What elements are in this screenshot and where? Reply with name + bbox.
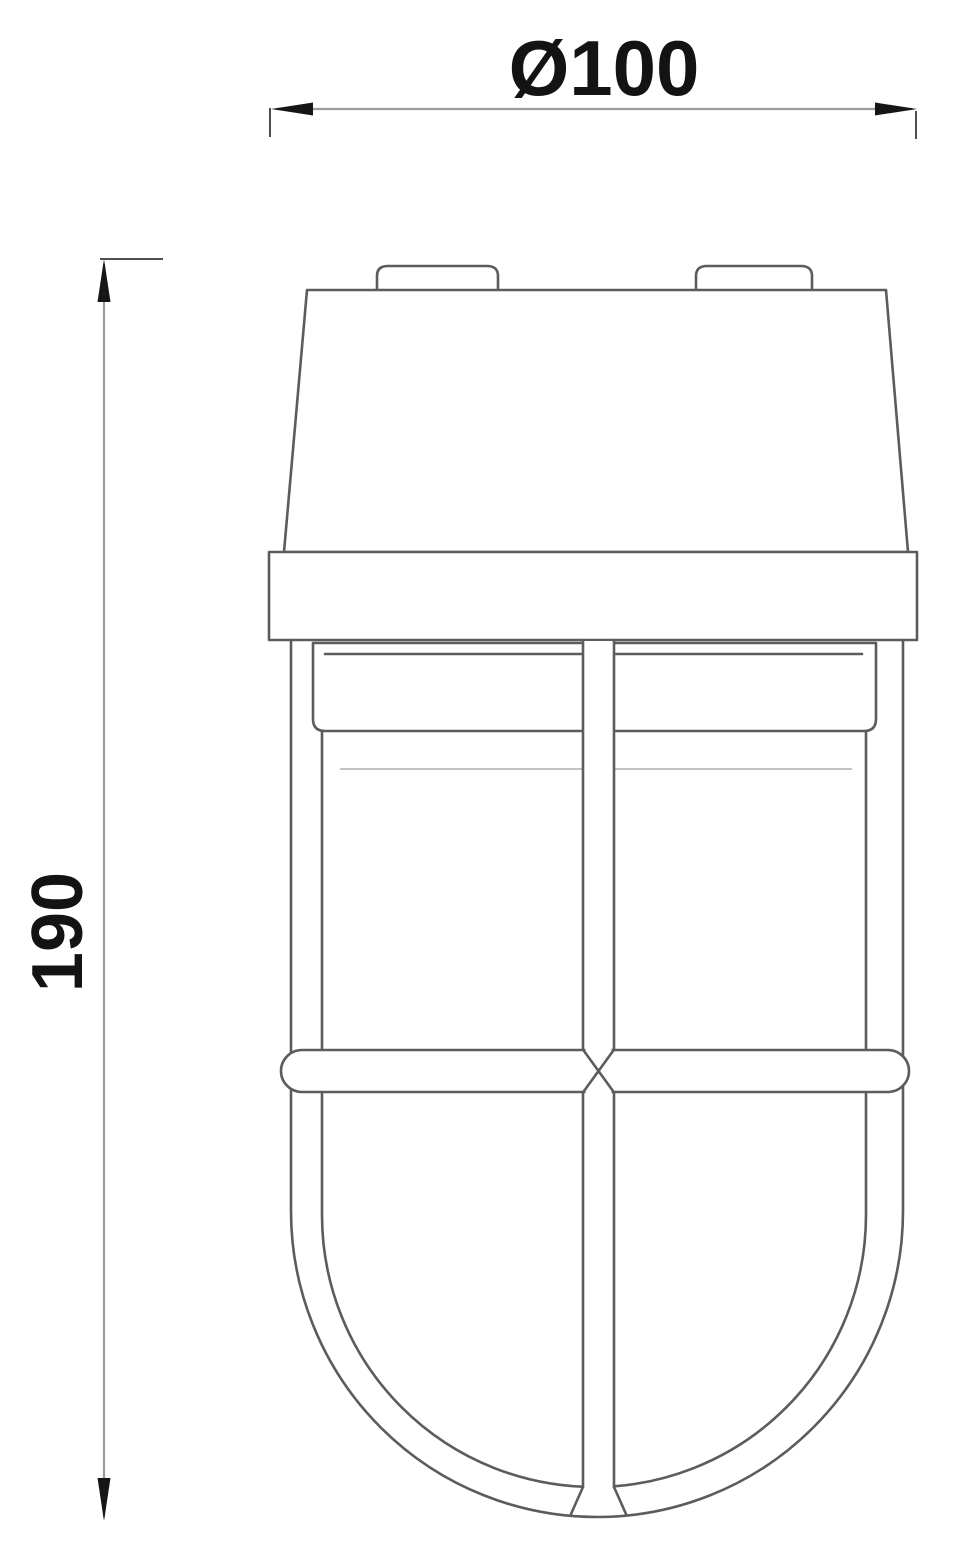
- mounting-tab-right: [696, 266, 812, 291]
- arrowhead-top-icon: [98, 259, 111, 302]
- arrowhead-right-icon: [875, 103, 917, 116]
- arrowhead-left-icon: [271, 103, 313, 116]
- dimension-diameter: Ø100: [270, 24, 917, 139]
- mounting-tab-left: [377, 266, 498, 291]
- dimension-diameter-label: Ø100: [509, 24, 700, 112]
- technical-drawing-page: Ø100 190: [0, 0, 970, 1541]
- caged-lamp-technical-drawing: Ø100 190: [0, 0, 970, 1541]
- cage-center-bar-foot-right: [614, 1487, 626, 1514]
- lamp-flange: [269, 552, 917, 640]
- dimension-height: 190: [18, 259, 163, 1521]
- lamp-fixture: [269, 266, 917, 1517]
- dimension-height-label: 190: [18, 872, 98, 992]
- cage-center-bar-foot-left: [571, 1487, 583, 1514]
- arrowhead-bottom-icon: [98, 1478, 111, 1521]
- lamp-canopy: [284, 290, 908, 552]
